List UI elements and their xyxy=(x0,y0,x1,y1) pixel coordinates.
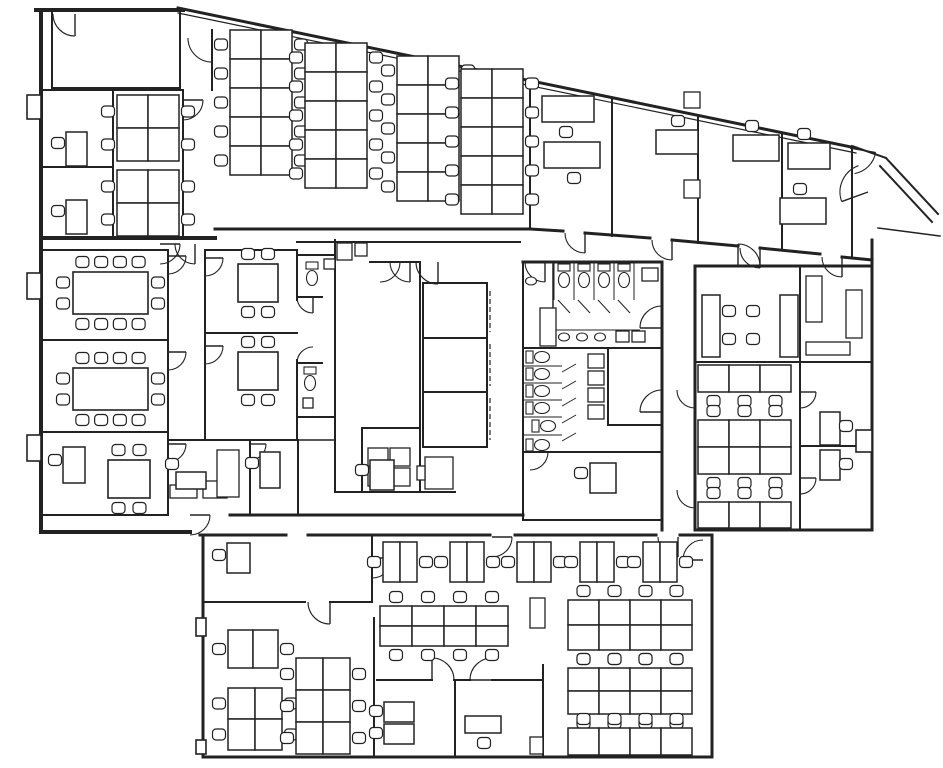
desk xyxy=(568,600,599,625)
desk xyxy=(397,172,428,201)
desk xyxy=(568,625,599,650)
chair xyxy=(608,714,621,725)
fixture-cabinet xyxy=(846,290,862,338)
chair xyxy=(133,445,146,456)
desk xyxy=(630,600,661,625)
structural-column xyxy=(27,273,41,299)
chair xyxy=(738,488,751,499)
chair xyxy=(57,277,70,288)
chair xyxy=(486,592,499,603)
door-swing-arc xyxy=(205,346,223,364)
toilet-tank xyxy=(526,368,533,380)
chair xyxy=(639,714,652,725)
chair xyxy=(382,152,395,163)
chair xyxy=(76,415,89,426)
fixture-cabinet xyxy=(642,268,658,281)
desk xyxy=(323,658,350,690)
chair xyxy=(769,488,782,499)
fixture-cabinet xyxy=(303,398,313,408)
desk xyxy=(370,460,394,490)
desk xyxy=(599,668,630,691)
chair xyxy=(52,206,65,217)
stall-partition-line xyxy=(598,300,610,313)
chair xyxy=(262,249,275,260)
desk xyxy=(492,127,523,156)
chair xyxy=(356,465,369,476)
chair xyxy=(95,415,108,426)
desk xyxy=(450,542,467,582)
chair xyxy=(628,557,641,568)
chair xyxy=(382,181,395,192)
wall xyxy=(585,233,650,238)
chair xyxy=(798,129,811,140)
desk xyxy=(305,101,336,130)
desk xyxy=(384,724,414,744)
toilet-icon xyxy=(535,386,550,397)
wall xyxy=(672,240,738,246)
chair xyxy=(242,249,255,260)
chair xyxy=(242,337,255,348)
desk xyxy=(760,420,791,447)
floor-plan xyxy=(0,0,943,768)
desk xyxy=(760,502,791,528)
chair xyxy=(368,557,381,568)
chair xyxy=(526,165,539,176)
chair xyxy=(670,714,683,725)
desk xyxy=(444,606,476,626)
desk xyxy=(400,542,417,582)
chair xyxy=(215,155,228,166)
desk xyxy=(117,170,148,203)
desk xyxy=(461,127,492,156)
structural-column xyxy=(856,430,872,452)
desk xyxy=(380,626,412,646)
desk xyxy=(228,630,253,668)
chair xyxy=(738,396,751,407)
structural-column xyxy=(27,435,41,461)
bath-fixtures-layer xyxy=(304,262,630,451)
door-swing-arc xyxy=(297,347,313,363)
door-swing-arc xyxy=(565,233,585,253)
desk xyxy=(568,691,599,714)
desk xyxy=(380,606,412,626)
desk xyxy=(397,114,428,143)
desk xyxy=(820,412,840,445)
chair xyxy=(242,307,255,318)
wall xyxy=(886,158,938,214)
desk xyxy=(461,69,492,98)
door-swing-arc xyxy=(640,306,662,328)
chair xyxy=(723,334,736,345)
chair xyxy=(370,706,383,717)
fixture-cabinet xyxy=(588,371,604,385)
chair xyxy=(680,557,693,568)
chair xyxy=(446,194,459,205)
chair xyxy=(446,165,459,176)
desk xyxy=(461,98,492,127)
desk xyxy=(729,502,760,528)
door-leaf xyxy=(842,192,868,202)
desk xyxy=(305,72,336,101)
desk xyxy=(544,142,600,168)
chair xyxy=(57,298,70,309)
chair xyxy=(502,557,515,568)
door-swing-arc xyxy=(652,240,672,260)
door-swing-arc xyxy=(800,478,816,494)
desk xyxy=(465,716,501,733)
desk xyxy=(534,542,551,582)
desk xyxy=(412,606,444,626)
chair xyxy=(166,459,179,470)
desk xyxy=(66,132,87,166)
door-leaf xyxy=(850,148,876,153)
chair xyxy=(281,669,294,680)
chair xyxy=(290,168,303,179)
desk xyxy=(661,625,692,650)
chair xyxy=(420,557,433,568)
chair xyxy=(840,459,853,470)
chair xyxy=(526,78,539,89)
chair xyxy=(707,478,720,489)
door-swing-arc xyxy=(53,14,75,36)
chair xyxy=(262,337,275,348)
stall-partition-line xyxy=(562,415,576,423)
chair xyxy=(182,139,195,150)
chair xyxy=(113,257,126,268)
desk xyxy=(590,463,616,493)
stall-partition-line xyxy=(558,300,570,313)
chair xyxy=(370,728,383,739)
desk xyxy=(599,625,630,650)
desk xyxy=(261,117,292,146)
door-swing-arc xyxy=(297,297,313,313)
chair xyxy=(281,733,294,744)
chair xyxy=(112,503,125,514)
chair xyxy=(390,592,403,603)
desk xyxy=(698,447,729,474)
desk xyxy=(66,200,87,234)
chair xyxy=(290,139,303,150)
sink-icon xyxy=(595,333,606,341)
chair xyxy=(262,307,275,318)
desk xyxy=(597,542,614,582)
chair xyxy=(487,557,500,568)
toilet-tank xyxy=(526,385,533,397)
chair xyxy=(526,107,539,118)
toilet-tank xyxy=(532,420,539,432)
chair xyxy=(113,353,126,364)
chair xyxy=(213,698,226,709)
door-swing-arc xyxy=(530,452,548,470)
toilet-tank xyxy=(526,402,533,414)
desk xyxy=(230,88,261,117)
stall-partition-line xyxy=(562,433,576,441)
desk xyxy=(630,625,661,650)
desk xyxy=(117,95,148,128)
toilet-icon xyxy=(307,271,318,286)
chair xyxy=(435,557,448,568)
door-swing-arc xyxy=(205,258,223,276)
chair xyxy=(565,557,578,568)
toilet-tank xyxy=(306,262,318,269)
desk xyxy=(227,543,250,573)
chair xyxy=(608,586,621,597)
toilet-icon xyxy=(541,421,556,432)
chair xyxy=(102,214,115,225)
desk xyxy=(698,365,729,392)
toilet-icon xyxy=(599,273,610,288)
conference-table xyxy=(73,272,148,314)
chair xyxy=(132,415,145,426)
desk xyxy=(661,728,692,755)
fixture-cabinet xyxy=(684,180,700,198)
chair xyxy=(102,106,115,117)
fixture-cabinet xyxy=(588,354,604,368)
conference-table xyxy=(108,460,150,498)
toilet-icon xyxy=(535,403,550,414)
chair xyxy=(182,106,195,117)
desk xyxy=(412,626,444,646)
desk xyxy=(461,185,492,214)
desk xyxy=(476,626,508,646)
fixture-cabinet xyxy=(806,342,850,355)
desk xyxy=(467,542,484,582)
desk xyxy=(384,702,414,722)
chair xyxy=(182,181,195,192)
desk xyxy=(296,658,323,690)
chair xyxy=(608,654,621,665)
desk xyxy=(517,542,534,582)
fixture-cabinet xyxy=(588,405,604,419)
chair xyxy=(132,257,145,268)
desk xyxy=(261,59,292,88)
stall-partition-line xyxy=(562,398,576,406)
desk xyxy=(305,130,336,159)
stall-partition-line xyxy=(578,300,590,313)
chair xyxy=(152,373,165,384)
chair xyxy=(76,319,89,330)
chair xyxy=(215,68,228,79)
wall xyxy=(842,257,872,260)
chair xyxy=(577,654,590,665)
chair xyxy=(281,644,294,655)
chair xyxy=(707,396,720,407)
desk xyxy=(568,728,599,755)
desk xyxy=(253,630,278,668)
desk xyxy=(176,472,206,489)
chair xyxy=(707,488,720,499)
desk xyxy=(780,295,798,357)
chair xyxy=(102,181,115,192)
structural-column xyxy=(196,740,206,754)
desk xyxy=(255,719,282,750)
chair xyxy=(747,306,760,317)
desk xyxy=(729,420,760,447)
door-swing-arc xyxy=(470,658,492,680)
chair xyxy=(382,65,395,76)
chair xyxy=(486,650,499,661)
chair xyxy=(112,445,125,456)
chair xyxy=(95,257,108,268)
chair xyxy=(215,97,228,108)
desk xyxy=(461,156,492,185)
desk xyxy=(599,600,630,625)
door-swing-arc xyxy=(800,392,816,408)
desk xyxy=(260,452,280,488)
chair xyxy=(746,121,759,132)
toilet-icon xyxy=(535,352,550,363)
desk xyxy=(702,295,720,357)
chair xyxy=(57,394,70,405)
sink-icon xyxy=(526,277,537,285)
desk xyxy=(305,43,336,72)
desk xyxy=(296,722,323,754)
chair xyxy=(290,52,303,63)
desk xyxy=(383,542,400,582)
desk xyxy=(542,96,594,122)
structural-column xyxy=(196,618,206,636)
chair xyxy=(57,373,70,384)
desk xyxy=(148,170,179,203)
stall-partition-line xyxy=(562,364,576,372)
toilet-tank xyxy=(304,367,316,374)
chair xyxy=(152,277,165,288)
chair xyxy=(707,406,720,417)
chair xyxy=(290,110,303,121)
fixture-cabinet xyxy=(337,243,352,260)
fixture-cabinet xyxy=(355,243,367,256)
door-swing-arc xyxy=(640,390,662,412)
chair xyxy=(422,650,435,661)
desk xyxy=(397,56,428,85)
desk xyxy=(63,447,85,483)
desk xyxy=(255,688,282,719)
desk xyxy=(228,688,255,719)
desk xyxy=(230,117,261,146)
conference-table xyxy=(238,264,278,302)
chair xyxy=(577,586,590,597)
desk xyxy=(630,668,661,691)
toilet-icon xyxy=(579,273,590,288)
fixture-cabinet xyxy=(217,450,239,497)
conference-table xyxy=(73,368,148,410)
desk xyxy=(336,130,367,159)
toilet-tank xyxy=(598,264,610,271)
desk xyxy=(733,135,779,161)
toilet-icon xyxy=(535,440,550,451)
chair xyxy=(747,334,760,345)
desk xyxy=(397,85,428,114)
chair xyxy=(526,194,539,205)
desk xyxy=(599,691,630,714)
desk xyxy=(698,502,729,528)
toilet-icon xyxy=(305,376,316,391)
chair xyxy=(446,107,459,118)
fixture-cabinet xyxy=(425,457,453,489)
desk xyxy=(492,98,523,127)
door-swing-arc xyxy=(168,256,186,274)
desk xyxy=(117,128,148,161)
desk xyxy=(397,143,428,172)
sink-icon xyxy=(577,333,588,341)
desk xyxy=(336,159,367,188)
chair xyxy=(670,586,683,597)
desk xyxy=(336,72,367,101)
fixture-cabinet xyxy=(324,259,335,269)
chair xyxy=(246,458,259,469)
desk xyxy=(568,668,599,691)
door-swing-arc xyxy=(677,490,695,508)
chair xyxy=(769,478,782,489)
toilet-icon xyxy=(535,369,550,380)
chair xyxy=(382,94,395,105)
desk xyxy=(492,69,523,98)
desk xyxy=(661,600,692,625)
desk xyxy=(444,626,476,646)
toilet-tank xyxy=(618,264,630,271)
chair xyxy=(446,78,459,89)
chair xyxy=(95,319,108,330)
desk xyxy=(323,722,350,754)
fixture-cabinet xyxy=(530,737,543,754)
chair xyxy=(382,123,395,134)
door-swing-arc xyxy=(432,658,454,680)
chair xyxy=(102,139,115,150)
fixture-cabinet xyxy=(588,388,604,402)
chair xyxy=(370,110,383,121)
desk xyxy=(230,30,261,59)
desk xyxy=(117,203,148,236)
structural-column xyxy=(27,95,41,119)
chair xyxy=(560,127,573,138)
wall xyxy=(760,248,820,254)
chair xyxy=(152,394,165,405)
desk xyxy=(788,143,830,169)
chair xyxy=(575,468,588,479)
chair xyxy=(723,306,736,317)
desk xyxy=(230,146,261,175)
desk xyxy=(296,690,323,722)
chair xyxy=(639,654,652,665)
wall xyxy=(878,228,940,236)
chair xyxy=(370,81,383,92)
desk xyxy=(228,719,255,750)
chair xyxy=(213,729,226,740)
fixture-cabinet xyxy=(540,308,556,346)
chair xyxy=(577,714,590,725)
desk xyxy=(148,128,179,161)
desk xyxy=(780,198,826,224)
desk xyxy=(698,420,729,447)
stall-partition-line xyxy=(618,300,630,313)
chair xyxy=(213,644,226,655)
desk xyxy=(261,88,292,117)
chair xyxy=(390,650,403,661)
desk xyxy=(261,146,292,175)
desk xyxy=(729,365,760,392)
chair xyxy=(76,353,89,364)
toilet-tank xyxy=(558,264,570,271)
fixture-cabinet xyxy=(417,466,425,480)
conference-table xyxy=(238,352,278,390)
chair xyxy=(840,421,853,432)
desk xyxy=(230,59,261,88)
desk xyxy=(476,606,508,626)
desk xyxy=(336,101,367,130)
chair xyxy=(49,455,62,466)
chair xyxy=(152,298,165,309)
chair xyxy=(454,650,467,661)
